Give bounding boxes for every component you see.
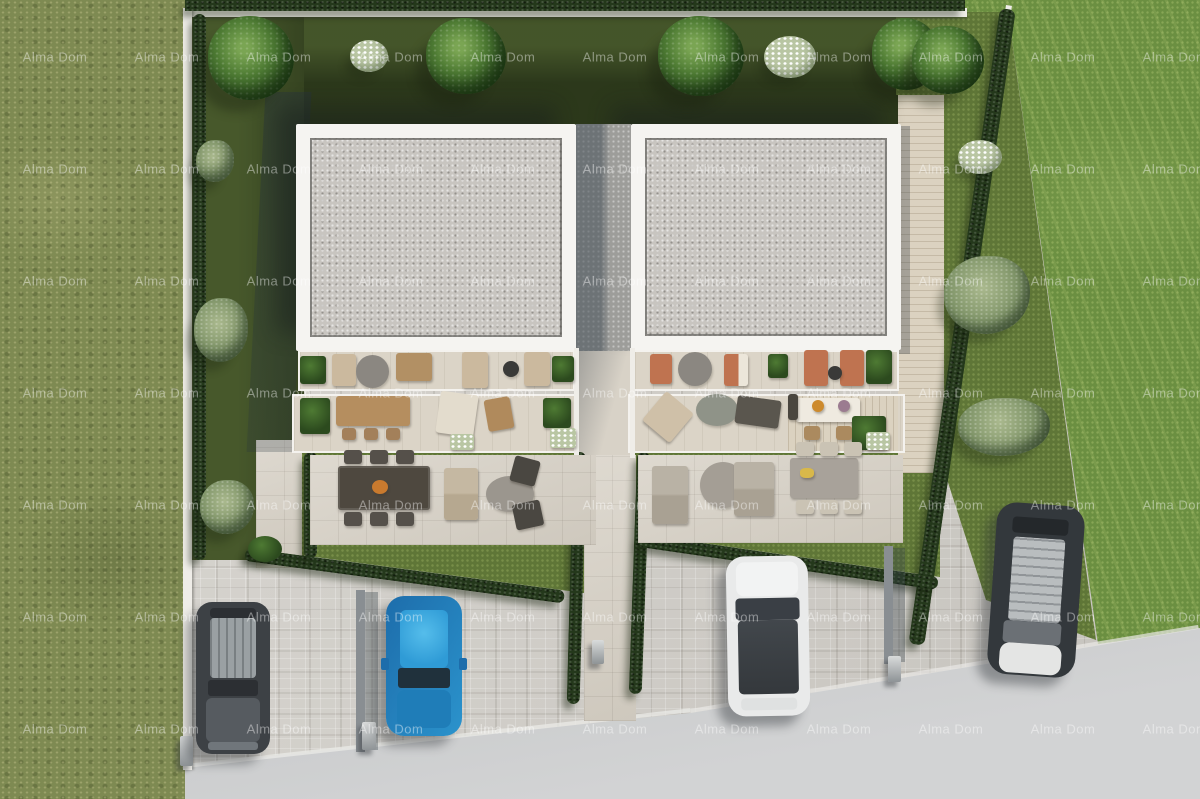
car-blue <box>386 596 462 736</box>
potted-plant <box>768 354 788 378</box>
chair <box>344 450 362 464</box>
boundary-wall-left <box>183 8 192 770</box>
hedge-left-inside <box>193 14 206 560</box>
flower-pot <box>450 434 474 450</box>
potted-plant <box>866 350 892 384</box>
parking-divider-wall <box>884 546 893 664</box>
car-bumper <box>208 742 258 750</box>
table-centerpiece <box>800 468 814 478</box>
flower-bush <box>958 140 1002 174</box>
chair <box>804 426 820 440</box>
lounge-chair <box>435 391 478 438</box>
armchair <box>724 354 748 386</box>
car-windshield <box>208 680 258 696</box>
chair <box>844 442 862 456</box>
wall-shadow <box>893 548 905 662</box>
car-hood <box>998 642 1062 676</box>
chair <box>364 428 378 440</box>
sofa <box>652 466 688 524</box>
car-trunk <box>741 698 797 711</box>
shrub <box>248 536 282 562</box>
chair <box>836 426 852 440</box>
chair <box>370 450 388 464</box>
bench <box>734 395 781 429</box>
flower-pot <box>866 432 890 450</box>
gap-between-buildings <box>576 124 631 351</box>
chair <box>396 450 414 464</box>
chair <box>796 442 814 456</box>
flower-pot <box>838 400 850 412</box>
car-windshield <box>735 597 799 620</box>
aerial-site-render: Alma DomAlma DomAlma DomAlma DomAlma Dom… <box>0 0 1200 799</box>
chair <box>370 512 388 526</box>
tree <box>912 26 984 94</box>
grill <box>828 366 842 380</box>
chair <box>844 500 862 514</box>
chair <box>820 442 838 456</box>
car-mirror <box>459 658 467 670</box>
grill <box>503 361 519 377</box>
roof-right <box>645 138 887 336</box>
sofa <box>444 468 478 520</box>
roof-left <box>310 138 562 337</box>
car-dark-gray <box>196 602 270 754</box>
flower-bush <box>350 40 388 72</box>
chair <box>796 500 814 514</box>
car-white <box>726 555 811 716</box>
car-rear-window <box>210 608 256 618</box>
car-hood <box>206 698 260 742</box>
car-roof <box>400 610 448 668</box>
chair <box>342 428 356 440</box>
potted-plant <box>300 356 326 384</box>
sofa <box>734 462 774 516</box>
car-roof <box>210 618 256 678</box>
dining-table <box>790 458 858 498</box>
potted-plant <box>552 356 574 382</box>
bench <box>524 352 550 386</box>
bollard <box>592 640 604 664</box>
bollard <box>180 736 193 766</box>
chair <box>820 500 838 514</box>
car-rear-window <box>1012 516 1069 536</box>
flower-bush <box>764 36 816 78</box>
sun-lounger <box>840 350 864 386</box>
deck-chair <box>483 396 514 432</box>
car-roof <box>738 619 799 694</box>
car-black-white <box>986 501 1086 679</box>
dining-table-white <box>796 398 860 422</box>
tree <box>426 18 506 94</box>
round-rug <box>356 355 389 388</box>
car-hood <box>397 690 451 728</box>
armchair <box>332 354 356 386</box>
sun-lounger <box>804 350 828 386</box>
armchair <box>650 354 672 384</box>
car-windshield <box>398 668 450 688</box>
table-centerpiece <box>372 480 388 494</box>
field-left <box>0 0 190 799</box>
car-roof <box>1008 536 1066 623</box>
tree <box>658 16 744 96</box>
oval-rug <box>696 394 738 426</box>
flower-pot <box>550 428 576 448</box>
car-hood <box>736 561 799 596</box>
flower-pot <box>812 400 824 412</box>
hedge-top-outside <box>185 0 965 11</box>
cabinet <box>788 394 798 420</box>
entry-wall <box>630 348 635 458</box>
chair <box>386 428 400 440</box>
side-tables <box>396 353 432 381</box>
chair <box>396 512 414 526</box>
bollard <box>888 656 901 682</box>
entry-court-center <box>578 348 634 458</box>
dining-table-wood <box>336 396 410 426</box>
potted-plant <box>300 398 330 434</box>
potted-plant <box>543 398 571 428</box>
round-rug <box>678 352 712 386</box>
tree <box>208 16 294 100</box>
sofa <box>462 352 488 388</box>
chair <box>344 512 362 526</box>
car-mirror <box>381 658 389 670</box>
bollard <box>362 722 376 750</box>
